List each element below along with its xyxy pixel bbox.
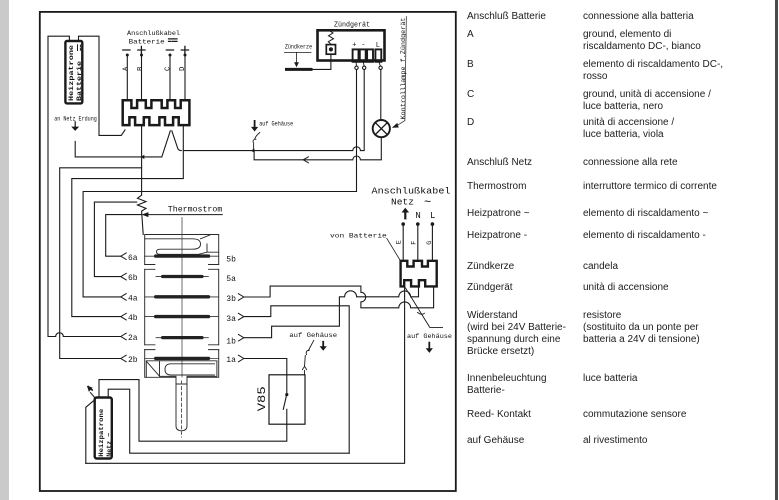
- svg-text:auf Gehäuse: auf Gehäuse: [289, 332, 337, 339]
- svg-text:3a: 3a: [226, 315, 236, 324]
- svg-text:~: ~: [424, 196, 431, 210]
- svg-text:auf Gehäuse: auf Gehäuse: [259, 120, 293, 127]
- svg-text:Kontrolllampe f.Zündgerät: Kontrolllampe f.Zündgerät: [400, 17, 407, 119]
- svg-text:Batterie: Batterie: [129, 38, 165, 46]
- svg-text:B: B: [137, 66, 145, 71]
- svg-text:auf Gehäuse: auf Gehäuse: [407, 333, 452, 340]
- svg-text:Anschlußkabel: Anschlußkabel: [372, 186, 451, 197]
- svg-text:2a: 2a: [128, 334, 138, 343]
- svg-text:F: F: [410, 241, 418, 245]
- svg-text:Anschlußkabel: Anschlußkabel: [127, 30, 180, 38]
- svg-text:6b: 6b: [128, 274, 138, 283]
- svg-text:3b: 3b: [226, 295, 236, 304]
- svg-text:N: N: [415, 211, 420, 221]
- svg-text:1a: 1a: [226, 356, 236, 365]
- svg-text:A: A: [122, 66, 130, 71]
- svg-text:Thermostrom: Thermostrom: [168, 204, 223, 214]
- svg-text:-: -: [361, 41, 365, 49]
- svg-text:1b: 1b: [226, 337, 236, 346]
- svg-text:Netz: Netz: [391, 197, 414, 208]
- svg-text:G: G: [426, 241, 434, 245]
- svg-text:6a: 6a: [128, 254, 138, 263]
- svg-text:4a: 4a: [128, 294, 138, 303]
- svg-text:2b: 2b: [128, 356, 138, 365]
- svg-text:D: D: [179, 67, 187, 71]
- svg-text:L: L: [430, 211, 435, 221]
- svg-text:4b: 4b: [128, 314, 138, 323]
- svg-text:Heizpatrone: Heizpatrone: [98, 408, 105, 456]
- svg-text:Netz ~: Netz ~: [106, 432, 113, 456]
- svg-text:5b: 5b: [226, 256, 236, 265]
- svg-text:Zündkerze: Zündkerze: [285, 44, 312, 51]
- svg-text:Batterie: Batterie: [76, 60, 83, 101]
- svg-text:Heizpatrone: Heizpatrone: [68, 44, 75, 101]
- svg-text:E: E: [396, 240, 404, 244]
- svg-text:von Batterie: von Batterie: [330, 232, 387, 239]
- svg-text:5a: 5a: [226, 275, 236, 284]
- svg-text:+: +: [352, 42, 356, 50]
- svg-text:Zündgerät: Zündgerät: [334, 22, 370, 30]
- svg-text:C: C: [164, 66, 172, 71]
- svg-text:V85: V85: [257, 386, 269, 411]
